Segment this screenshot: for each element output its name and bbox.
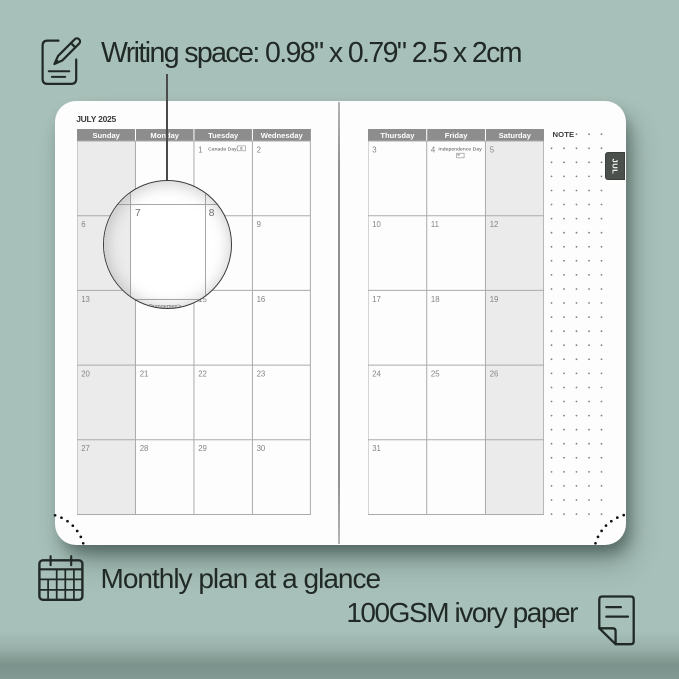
svg-text:Sunday: Sunday xyxy=(92,131,120,140)
svg-text:13: 13 xyxy=(81,295,90,304)
svg-text:4: 4 xyxy=(430,145,435,154)
svg-text:17: 17 xyxy=(372,295,381,304)
svg-text:31: 31 xyxy=(372,444,381,453)
svg-text:Thursday: Thursday xyxy=(380,131,415,140)
svg-text:30: 30 xyxy=(256,444,265,453)
svg-text:16: 16 xyxy=(256,295,265,304)
svg-text:25: 25 xyxy=(430,369,439,378)
svg-text:9: 9 xyxy=(256,220,260,229)
svg-text:28: 28 xyxy=(139,444,148,453)
svg-text:Wednesday: Wednesday xyxy=(260,131,303,140)
svg-text:Canada Day: Canada Day xyxy=(208,147,237,153)
svg-text:6: 6 xyxy=(81,220,85,229)
svg-text:20: 20 xyxy=(81,369,90,378)
svg-text:Tuesday: Tuesday xyxy=(208,131,239,140)
svg-text:29: 29 xyxy=(198,444,207,453)
svg-text:Independence Day: Independence Day xyxy=(438,147,482,153)
svg-text:22: 22 xyxy=(198,369,207,378)
svg-text:Friday: Friday xyxy=(444,131,468,140)
svg-text:10: 10 xyxy=(372,220,381,229)
svg-text:12: 12 xyxy=(489,220,498,229)
svg-text:18: 18 xyxy=(430,295,439,304)
svg-text:19: 19 xyxy=(489,295,498,304)
svg-text:Saturday: Saturday xyxy=(498,131,531,140)
svg-text:21: 21 xyxy=(139,369,148,378)
svg-text:3: 3 xyxy=(372,145,376,154)
svg-text:5: 5 xyxy=(489,145,493,154)
svg-text:11: 11 xyxy=(430,220,438,229)
svg-text:1: 1 xyxy=(198,145,202,154)
svg-text:2: 2 xyxy=(256,145,260,154)
svg-text:26: 26 xyxy=(489,369,498,378)
svg-text:24: 24 xyxy=(372,369,381,378)
svg-text:23: 23 xyxy=(256,369,265,378)
svg-text:27: 27 xyxy=(81,444,90,453)
